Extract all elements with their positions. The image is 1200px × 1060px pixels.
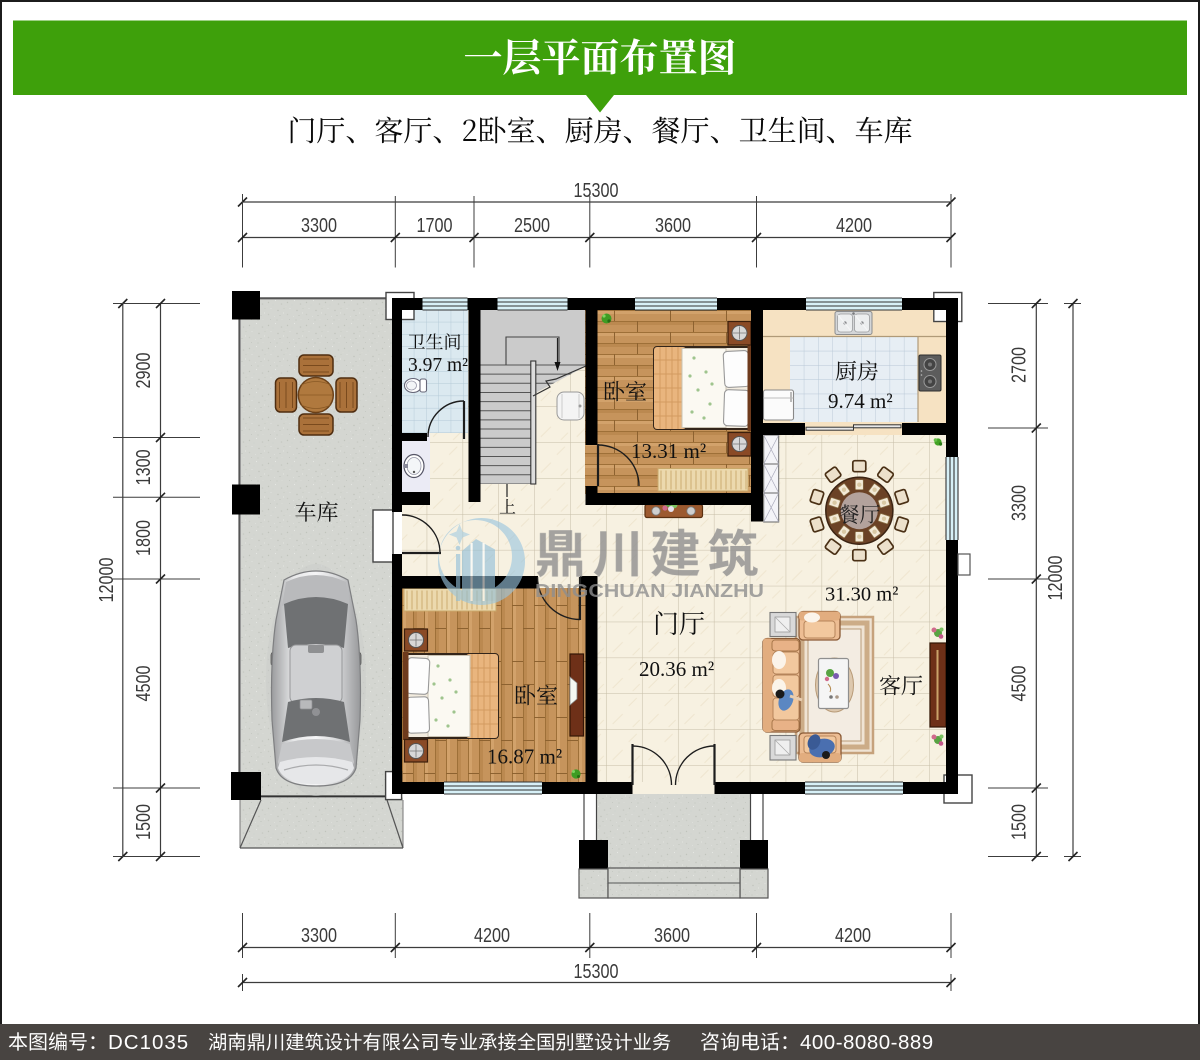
svg-text:2900: 2900 bbox=[132, 353, 155, 389]
svg-text:DINGCHUAN JIANZHU: DINGCHUAN JIANZHU bbox=[535, 580, 764, 601]
svg-text:3600: 3600 bbox=[655, 214, 691, 237]
svg-text:400-8080-889: 400-8080-889 bbox=[800, 1031, 934, 1054]
svg-text:3600: 3600 bbox=[654, 924, 690, 947]
svg-text:2700: 2700 bbox=[1008, 347, 1031, 383]
svg-text:12000: 12000 bbox=[95, 558, 118, 603]
svg-text:4200: 4200 bbox=[835, 924, 871, 947]
svg-text:2500: 2500 bbox=[514, 214, 550, 237]
svg-text:9.74 m²: 9.74 m² bbox=[828, 389, 893, 413]
svg-text:4200: 4200 bbox=[836, 214, 872, 237]
svg-text:16.87 m²: 16.87 m² bbox=[487, 745, 562, 769]
svg-text:31.30 m²: 31.30 m² bbox=[825, 584, 898, 606]
svg-text:1500: 1500 bbox=[1008, 804, 1031, 840]
svg-text:1700: 1700 bbox=[417, 214, 453, 237]
svg-text:13.31 m²: 13.31 m² bbox=[631, 439, 706, 463]
svg-text:12000: 12000 bbox=[1044, 556, 1067, 601]
svg-text:3.97 m²: 3.97 m² bbox=[408, 355, 468, 376]
svg-text:DC1035: DC1035 bbox=[108, 1031, 189, 1054]
svg-text:1300: 1300 bbox=[132, 449, 155, 485]
svg-text:3300: 3300 bbox=[301, 214, 337, 237]
svg-text:15300: 15300 bbox=[574, 179, 619, 202]
svg-text:20.36 m²: 20.36 m² bbox=[639, 657, 714, 681]
svg-text:3300: 3300 bbox=[1008, 485, 1031, 521]
svg-text:4500: 4500 bbox=[1008, 666, 1031, 702]
svg-text:1500: 1500 bbox=[132, 804, 155, 840]
svg-text:4500: 4500 bbox=[132, 666, 155, 702]
svg-text:4200: 4200 bbox=[474, 924, 510, 947]
svg-text:15300: 15300 bbox=[574, 960, 619, 983]
svg-text:3300: 3300 bbox=[301, 924, 337, 947]
svg-text:1800: 1800 bbox=[132, 520, 155, 556]
